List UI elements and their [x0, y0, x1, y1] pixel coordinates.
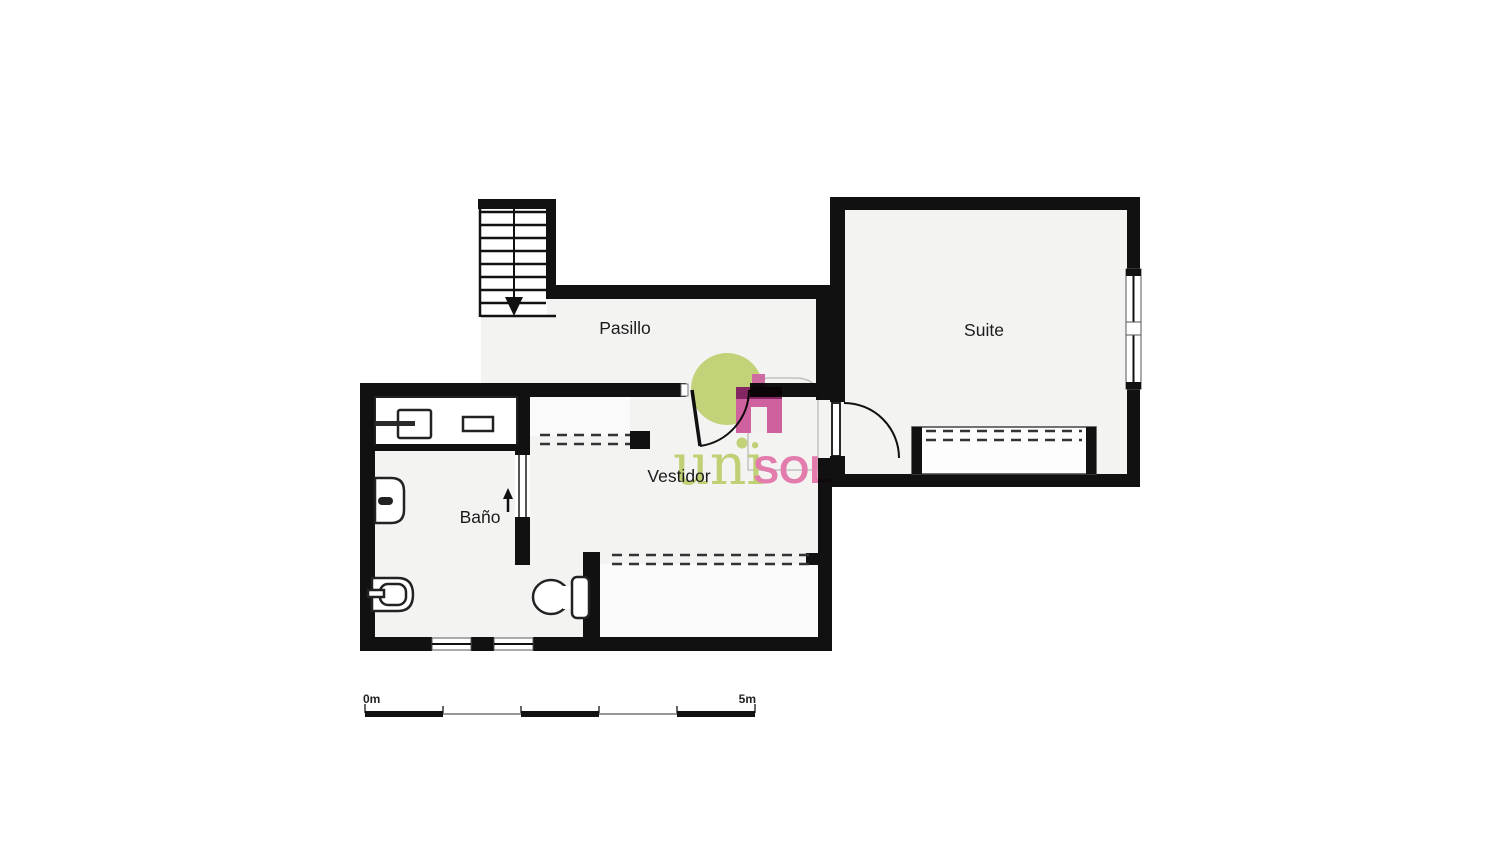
suite-wardrobe: [912, 427, 1096, 474]
vestidor-lower-closet-interior: [600, 564, 818, 637]
lower-closet-stub: [806, 553, 832, 565]
wardrobe-post-right: [1086, 427, 1096, 474]
room-label-pasillo: Pasillo: [599, 318, 651, 338]
bano-divider-lower: [515, 517, 530, 565]
door-leaf: [832, 403, 840, 456]
toilet: [533, 577, 589, 618]
scale-seg-3: [521, 711, 599, 717]
door-cap-top: [830, 396, 845, 402]
wardrobe-post-left: [912, 427, 922, 474]
scale-seg-1: [365, 711, 443, 717]
suite-top-wall: [830, 197, 1140, 210]
brand-text-sol: SOL: [753, 449, 833, 492]
suite-window: [1126, 269, 1141, 389]
suite-right-wall-upper: [1127, 197, 1140, 271]
toilet-tank: [572, 577, 589, 618]
bidet-faucet-icon: [368, 590, 384, 597]
wall-toilet-flush-icon: [378, 497, 393, 505]
bidet: [368, 578, 413, 611]
bottom-wall-seg2: [533, 637, 832, 651]
stair-right-wall: [546, 199, 556, 299]
bottom-wall-seg1: [360, 637, 432, 651]
vanity-accessory: [463, 417, 493, 431]
room-label-vestidor: Vestidor: [647, 466, 710, 486]
pasillo-top-wall: [552, 285, 830, 299]
vanity-front-edge: [375, 444, 517, 451]
floor-plan-page: uni SOL Pasillo Suite Vestidor Baño 0m 5…: [0, 0, 1500, 843]
bottom-wall-pier: [471, 637, 494, 651]
pasillo-right-wall: [816, 285, 830, 400]
bano-window-1: [432, 638, 471, 650]
room-label-suite: Suite: [964, 320, 1004, 340]
suite-bottom-wall: [830, 474, 1140, 487]
brand-text-uni: uni: [673, 432, 765, 498]
wardrobe-box: [912, 427, 1096, 474]
pocket-door-slot: [515, 455, 530, 517]
upper-closet-post: [630, 431, 650, 449]
staircase: [478, 199, 556, 317]
suite-right-wall-lower: [1127, 387, 1140, 487]
door-jamb: [681, 384, 688, 396]
suite-left-wall-upper: [830, 197, 845, 400]
room-label-bano: Baño: [460, 507, 501, 527]
scale-start-label: 0m: [363, 692, 380, 706]
bano-top-wall: [360, 383, 686, 397]
bano-window-2: [494, 638, 533, 650]
scale-bar: 0m 5m: [363, 692, 756, 717]
bano-pocket-door: [515, 455, 530, 517]
sink-faucet-icon: [375, 421, 415, 426]
scale-end-label: 5m: [739, 692, 756, 706]
stair-top-wall: [478, 199, 556, 209]
floor-plan: uni SOL Pasillo Suite Vestidor Baño 0m 5…: [0, 0, 1500, 843]
vestidor-upper-closet-interior: [530, 397, 630, 436]
scale-seg-5: [677, 711, 755, 717]
